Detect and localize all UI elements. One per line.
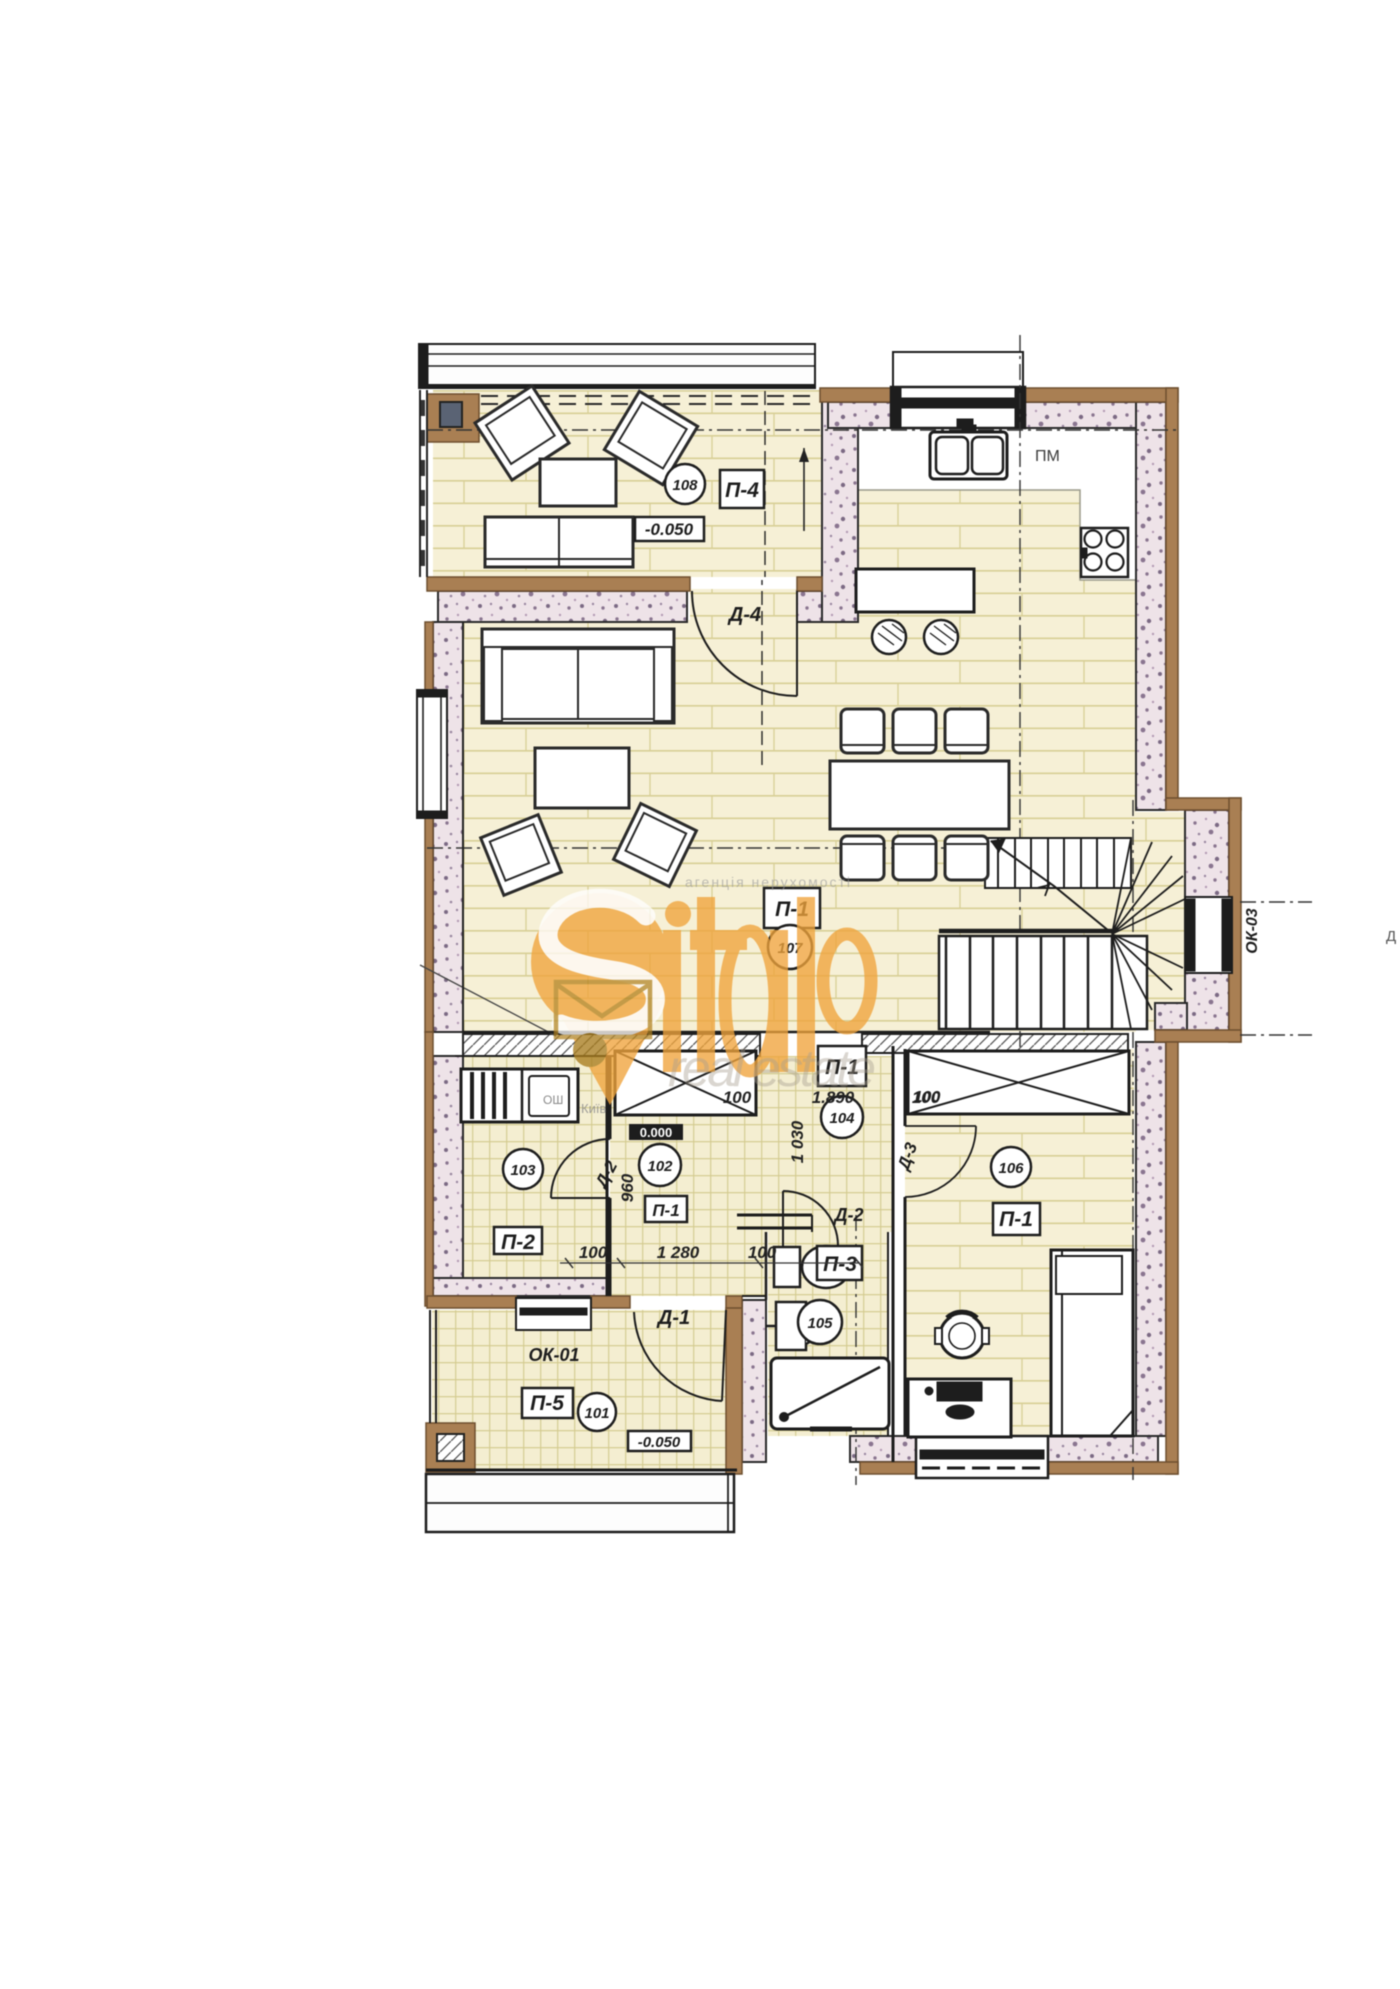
svg-text:1 280: 1 280 xyxy=(657,1243,700,1262)
svg-text:ОШ: ОШ xyxy=(543,1093,563,1107)
svg-text:Д-4: Д-4 xyxy=(727,604,761,626)
svg-text:100: 100 xyxy=(748,1243,777,1262)
svg-text:102: 102 xyxy=(647,1158,673,1175)
svg-text:Д-2: Д-2 xyxy=(832,1205,863,1225)
svg-text:100: 100 xyxy=(914,1089,941,1106)
svg-text:0.000: 0.000 xyxy=(640,1125,673,1140)
svg-text:П-1: П-1 xyxy=(652,1201,679,1220)
svg-text:П-3: П-3 xyxy=(823,1253,857,1276)
svg-text:ОК-01: ОК-01 xyxy=(528,1345,579,1365)
svg-text:real estate: real estate xyxy=(668,1040,876,1098)
svg-text:105: 105 xyxy=(807,1315,833,1332)
svg-text:-0.050: -0.050 xyxy=(645,520,694,539)
svg-text:-0.050: -0.050 xyxy=(638,1434,681,1451)
svg-text:960: 960 xyxy=(618,1173,637,1202)
svg-text:103: 103 xyxy=(510,1162,536,1179)
svg-text:100: 100 xyxy=(579,1243,608,1262)
svg-text:1 030: 1 030 xyxy=(788,1120,807,1163)
svg-text:104: 104 xyxy=(829,1110,855,1127)
svg-text:агенція нерухомості: агенція нерухомості xyxy=(685,874,853,890)
svg-text:ПМ: ПМ xyxy=(1035,448,1060,465)
svg-text:101: 101 xyxy=(584,1405,609,1422)
svg-text:Д: Д xyxy=(1386,928,1396,945)
svg-text:П-2: П-2 xyxy=(501,1231,535,1254)
svg-text:108: 108 xyxy=(672,477,698,494)
svg-text:П-1: П-1 xyxy=(999,1208,1033,1231)
svg-text:Д-1: Д-1 xyxy=(656,1307,690,1329)
svg-text:106: 106 xyxy=(998,1160,1024,1177)
svg-text:Київ: Київ xyxy=(581,1101,606,1116)
svg-text:П-5: П-5 xyxy=(530,1392,564,1415)
svg-text:П-4: П-4 xyxy=(725,479,759,502)
svg-text:ОК-03: ОК-03 xyxy=(1244,908,1261,954)
